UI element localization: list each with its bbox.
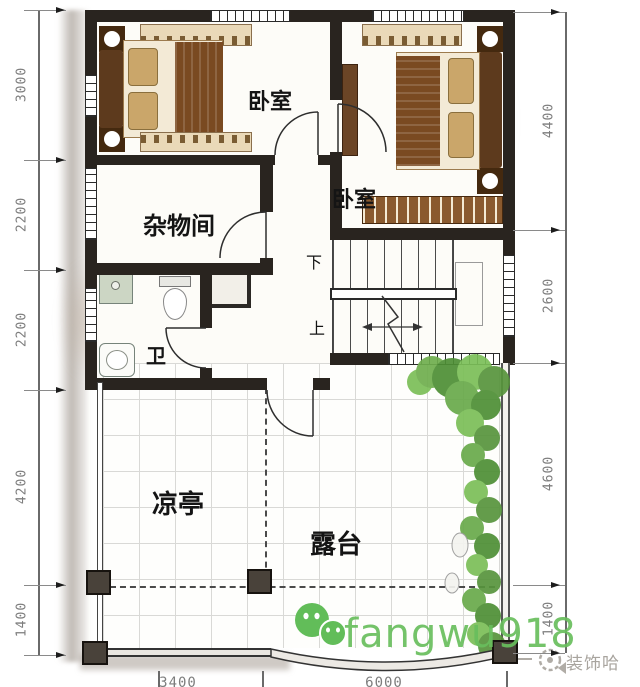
dim-arrow [56,157,65,163]
room-label-bath: 卫 [146,340,166,369]
dim-label: 6000 [358,675,410,687]
dim-arrow [551,9,560,15]
room-label-bedroom2: 卧室 [332,182,376,214]
dim-arrow [56,7,65,13]
room-label-pavilion: 凉亭 [152,484,204,521]
room-label-bedroom1: 卧室 [248,84,292,116]
dim-arrow [56,652,65,658]
brand-text: 装饰哈 [566,649,620,674]
dim-label: 1400 [15,598,30,642]
dim-arrow [56,387,65,393]
dim-label: 3000 [15,63,30,107]
room-label-terrace: 露台 [310,524,362,561]
dim-label: 3400 [154,675,202,687]
dim-label: 2600 [542,274,557,318]
door-arcs [166,104,386,436]
wechat-icon [295,603,346,646]
watermark-text: fangwu918 [344,611,577,657]
stairs-break-line [382,296,404,352]
dim-arrow [56,582,65,588]
dim-label: 4200 [15,465,30,509]
dim-arrow [56,267,65,273]
pavilion-column [247,569,272,594]
terrace-column [82,641,108,665]
dim-label: 4400 [542,99,557,143]
dim-arrow [551,582,560,588]
stairs-up-label: 上 [309,315,325,339]
dim-tick [262,671,264,687]
floor-plan: 卧室 卧室 杂物间 卫 凉亭 露台 下 上 3000 2200 2200 420… [0,0,640,687]
dim-arrow [551,227,560,233]
room-label-storage: 杂物间 [143,206,215,241]
dimension-line-right [565,12,567,653]
dim-label: 2200 [15,193,30,237]
dim-label: 4600 [542,452,557,496]
dim-arrow [551,360,560,366]
dimension-line-left [38,10,40,655]
stairs-down-label: 下 [306,249,322,273]
dim-tick [506,671,508,687]
stairs-direction-arrows [362,323,423,331]
pavilion-column [86,570,111,595]
dim-label: 2200 [15,308,30,352]
